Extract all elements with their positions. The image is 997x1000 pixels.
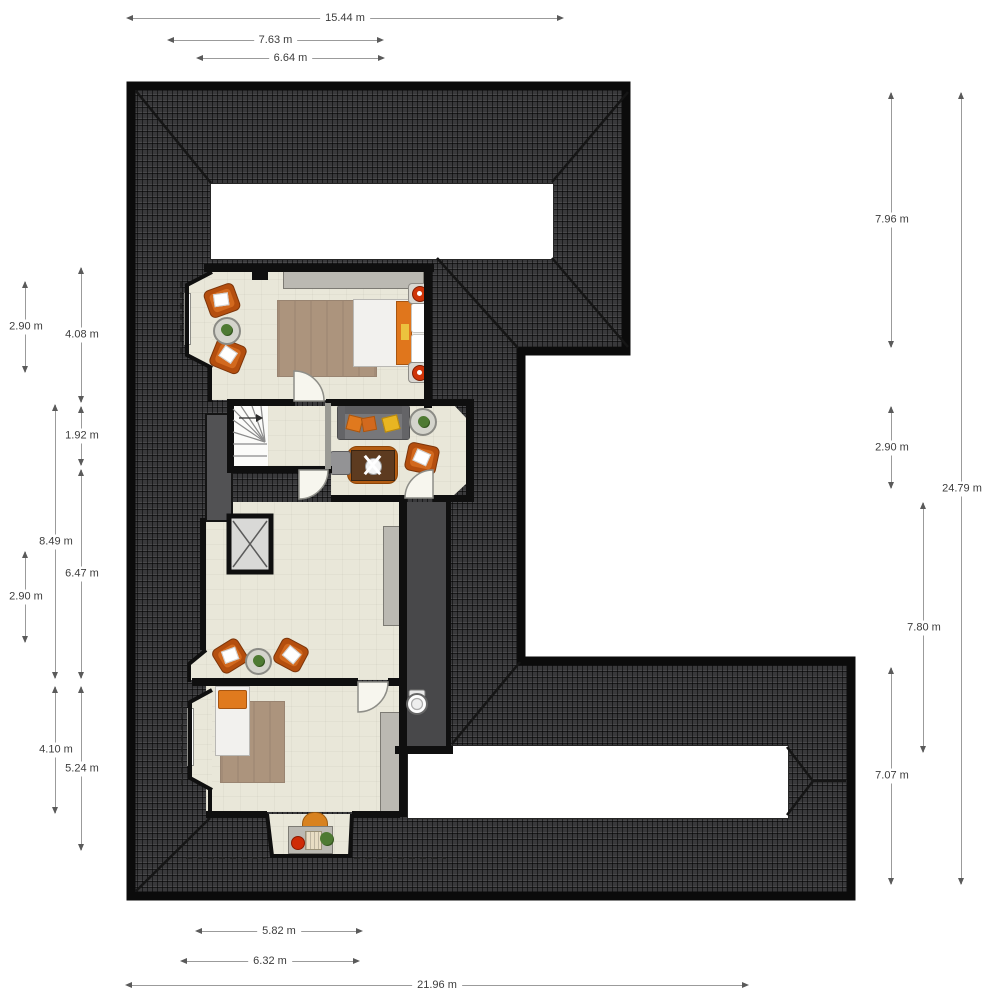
dimension-right-796: 7.96 m — [891, 93, 892, 347]
dimension-left-192: 1.92 m — [81, 407, 82, 465]
nightstand — [408, 362, 431, 383]
decor-plant — [320, 832, 333, 845]
dimension-left-647: 6.47 m — [81, 470, 82, 678]
desk — [351, 450, 395, 481]
sofa — [337, 405, 410, 440]
dimension-left-849: 8.49 m — [55, 405, 56, 678]
plant-table — [213, 317, 241, 345]
dimension-right-overall: 24.79 m — [961, 93, 962, 884]
dimension-bottom-2: 6.32 m — [182, 961, 358, 962]
coffee-table — [409, 408, 437, 436]
nightstand — [408, 283, 431, 304]
window-child-bay — [187, 708, 194, 766]
bed-pillow-orange — [218, 690, 247, 709]
dimension-right-707: 7.07 m — [891, 668, 892, 884]
room-landing — [268, 406, 325, 466]
wardrobe — [380, 712, 402, 814]
room-storage — [205, 413, 233, 522]
armchair — [403, 441, 440, 476]
side-chair — [330, 451, 351, 475]
dimension-top-overall: 15.44 m — [128, 18, 562, 19]
roof-void-top — [210, 183, 554, 260]
hall-cabinet — [383, 526, 403, 626]
dresser — [283, 271, 424, 289]
dimension-top-3: 6.64 m — [198, 58, 383, 59]
dimension-left-410: 4.10 m — [55, 687, 56, 813]
dimension-right-780: 7.80 m — [923, 503, 924, 752]
dimension-right-290: 2.90 m — [891, 407, 892, 488]
decor-red-bowl — [291, 836, 305, 850]
bed-pillow — [411, 303, 428, 333]
roof-void-bottom — [407, 745, 789, 819]
dimension-left-408: 4.08 m — [81, 268, 82, 402]
dimension-left-290b: 2.90 m — [25, 552, 26, 642]
dimension-bottom-1: 5.82 m — [197, 931, 361, 932]
room-stairs — [233, 406, 268, 466]
bed-pillow — [411, 334, 428, 364]
floor-plan-canvas[interactable]: 15.44 m 7.63 m 6.64 m 5.82 m 6.32 m 21.9… — [0, 0, 997, 1000]
dimension-left-524: 5.24 m — [81, 687, 82, 850]
window-master-bay — [184, 293, 191, 345]
dimension-bottom-overall: 21.96 m — [127, 985, 747, 986]
room-wc — [404, 502, 446, 748]
dimension-left-290a: 2.90 m — [25, 282, 26, 372]
plant-table — [245, 648, 272, 675]
dimension-top-2: 7.63 m — [169, 40, 382, 41]
bed-throw-yellow — [401, 324, 409, 340]
